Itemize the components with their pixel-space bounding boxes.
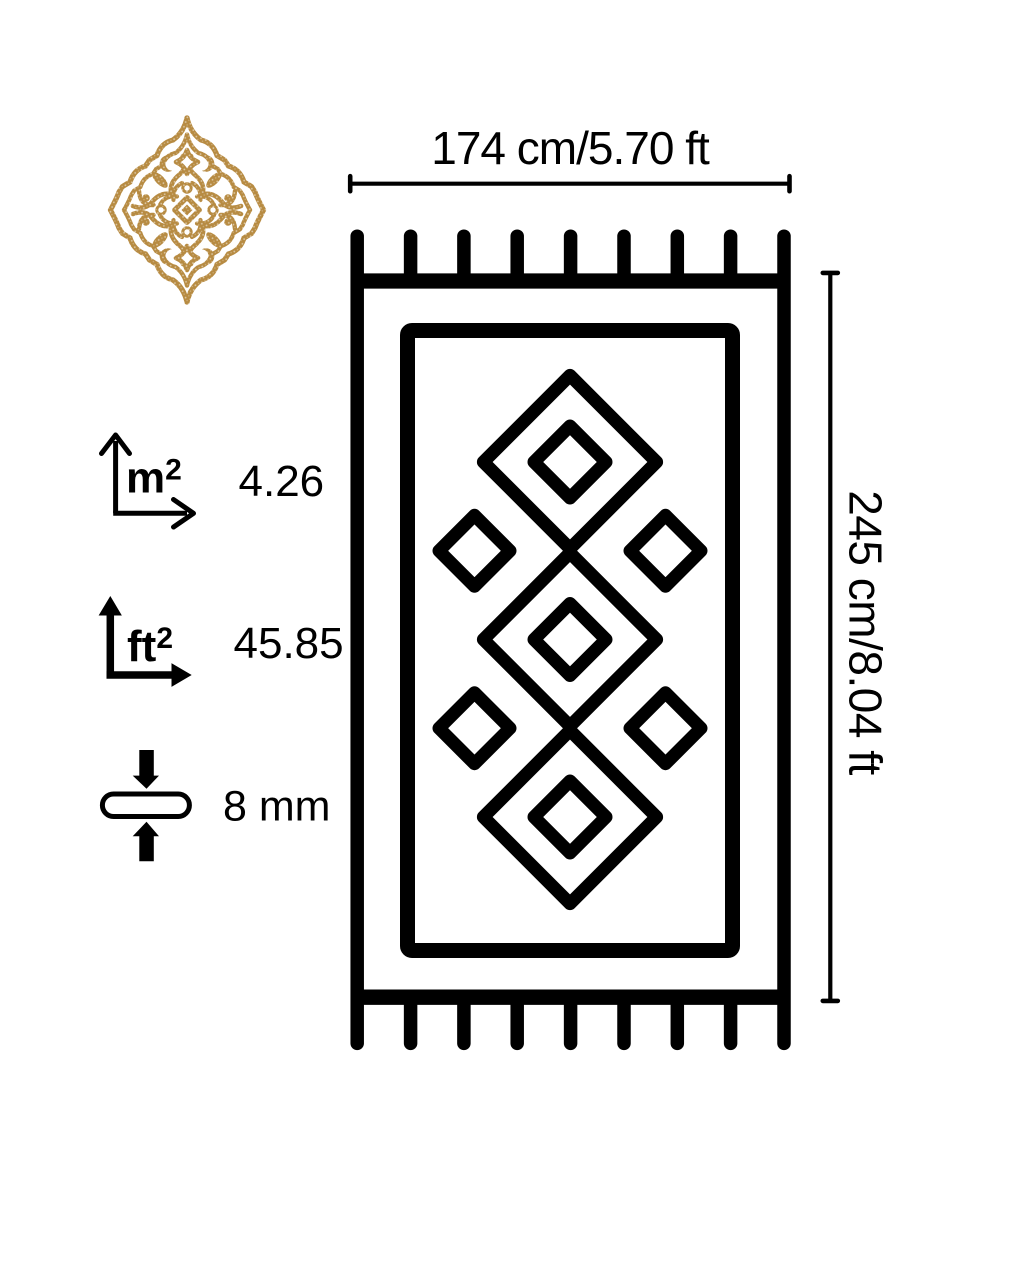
svg-text:45.85: 45.85 [234,619,344,668]
svg-text:4.26: 4.26 [239,457,325,506]
svg-text:174 cm/5.70 ft: 174 cm/5.70 ft [431,122,710,174]
svg-text:8 mm: 8 mm [223,783,331,831]
svg-text:245 cm/8.04 ft: 245 cm/8.04 ft [840,490,892,775]
